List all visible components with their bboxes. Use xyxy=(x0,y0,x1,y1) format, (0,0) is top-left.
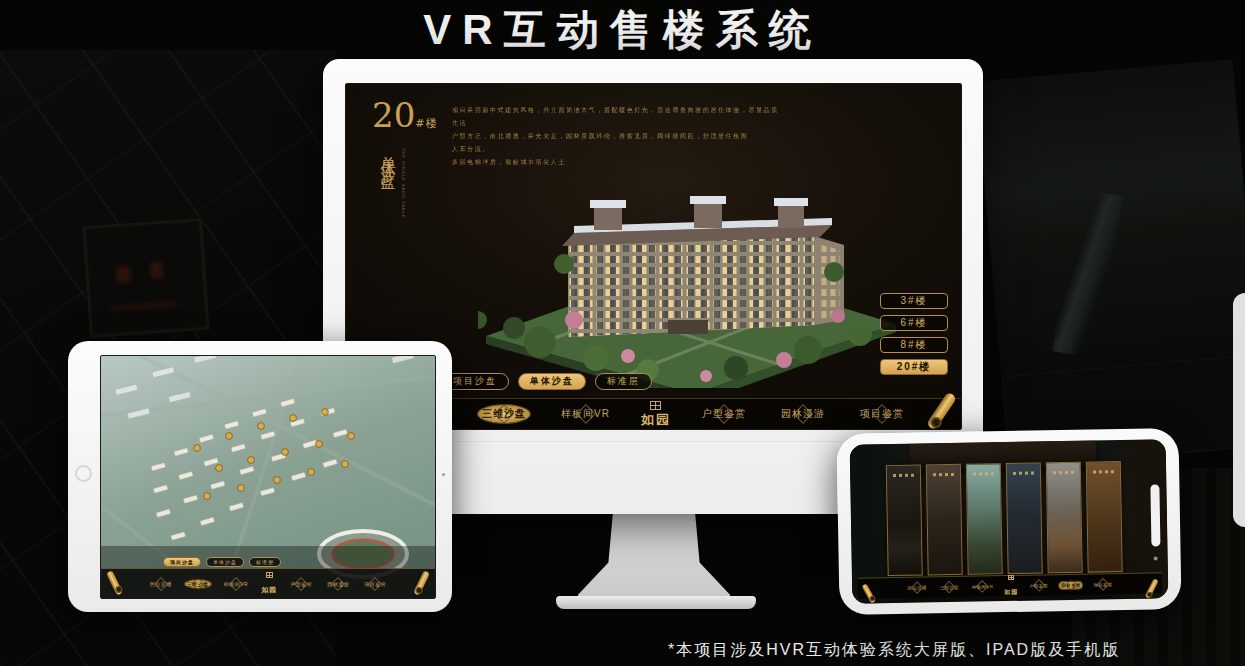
plaque-mark xyxy=(111,301,177,312)
tower-button-6[interactable]: 6#楼 xyxy=(880,315,948,331)
scroll-icon[interactable] xyxy=(926,391,957,430)
brand-logo: 如园 xyxy=(1004,575,1018,597)
building-number: 20 xyxy=(372,95,415,135)
tab-single-sandbox[interactable]: 单体沙盘 xyxy=(518,373,586,390)
tablet-view-tabs: 项目沙盘 单体沙盘 标准层 xyxy=(163,557,281,567)
river-shape xyxy=(1052,189,1124,358)
home-button[interactable] xyxy=(75,465,92,482)
brand-logo-text: 如园 xyxy=(261,585,277,594)
camera-icon xyxy=(442,473,445,476)
tablet-bottom-nav: 区位交通 三维沙盘 样板间VR 如园 户型鉴赏 园林漫游 项目鉴赏 xyxy=(101,568,435,598)
scroll-icon[interactable] xyxy=(106,570,123,595)
gallery-panels xyxy=(886,461,1123,576)
building-number-suffix: #楼 xyxy=(415,117,437,130)
background-device-sliver xyxy=(1233,293,1245,527)
background-plaque xyxy=(82,218,210,338)
nav-item-3d-sandbox[interactable]: 三维沙盘 xyxy=(938,583,961,590)
brand-logo-text: 如园 xyxy=(641,412,671,427)
nav-item-floorplan[interactable]: 户型鉴赏 xyxy=(698,405,750,423)
nav-item-3d-sandbox[interactable]: 三维沙盘 xyxy=(185,580,211,588)
building-3d-render[interactable] xyxy=(478,144,902,388)
nav-item-3d-sandbox[interactable]: 三维沙盘 xyxy=(478,405,530,423)
gallery-panel-garden[interactable] xyxy=(966,463,1003,575)
phone-screen: 区位交通 三维沙盘 样板间VR 如园 户型鉴赏 园林漫游 项目鉴赏 xyxy=(850,439,1169,603)
tower-button-8[interactable]: 8#楼 xyxy=(880,337,948,353)
gallery-panel-courtyard[interactable] xyxy=(886,465,923,577)
brand-logo: 如园 xyxy=(641,401,671,427)
nav-item-floorplan[interactable]: 户型鉴赏 xyxy=(288,580,314,588)
footnote-text: *本项目涉及HVR互动体验系统大屏版、IPAD版及手机版 xyxy=(668,640,1120,661)
tower-button-3[interactable]: 3#楼 xyxy=(880,293,948,309)
nav-item-garden-roam[interactable]: 园林漫游 xyxy=(777,405,829,423)
brand-logo-text: 如园 xyxy=(1004,588,1018,595)
nav-item-location-traffic[interactable]: 区位交通 xyxy=(148,580,174,588)
nav-item-project-view[interactable]: 项目鉴赏 xyxy=(1091,581,1114,588)
monitor-stand-neck xyxy=(578,512,730,604)
monitor-stand-base xyxy=(556,596,756,609)
description-line: 项目采用新中式建筑风格，外立面简洁大气，搭配暖色灯光，营造尊贵典雅的居住体验，尽… xyxy=(452,104,782,130)
plaque-mark xyxy=(150,262,163,279)
tablet-device: 项目沙盘 单体沙盘 标准层 区位交通 三维沙盘 样板间VR 如园 户型鉴赏 园林… xyxy=(68,341,452,612)
gallery-panel-warm-shelf[interactable] xyxy=(1086,461,1123,573)
plaque-mark xyxy=(116,266,131,283)
nav-item-showroom-vr[interactable]: 样板间VR xyxy=(222,580,250,588)
nav-item-location-traffic[interactable]: 区位交通 xyxy=(906,584,929,591)
seal-icon xyxy=(1008,575,1014,580)
nav-item-floorplan[interactable]: 户型鉴赏 xyxy=(1027,582,1050,589)
phone-speaker-pill xyxy=(1150,484,1160,546)
brand-logo: 如园 xyxy=(261,572,277,595)
tab-standard-floor[interactable]: 标准层 xyxy=(595,373,652,390)
poster-stage: VR互动售楼系统 20#楼 单体沙盘 THE SINGLE SAND TABLE… xyxy=(0,0,1245,666)
nav-item-project-view[interactable]: 项目鉴赏 xyxy=(856,405,908,423)
background-collage-river xyxy=(976,59,1245,378)
gallery-panel-interior[interactable] xyxy=(926,464,963,576)
tablet-screen: 项目沙盘 单体沙盘 标准层 区位交通 三维沙盘 样板间VR 如园 户型鉴赏 园林… xyxy=(100,355,436,599)
nav-item-showroom-vr[interactable]: 样板间VR xyxy=(557,405,614,423)
gallery-panel-autumn-wall[interactable] xyxy=(1046,462,1083,574)
section-title-vertical: 单体沙盘 xyxy=(378,144,397,264)
nav-item-project-view[interactable]: 项目鉴赏 xyxy=(362,580,388,588)
section-title-english: THE SINGLE SAND TABLE xyxy=(401,148,406,258)
scroll-icon[interactable] xyxy=(413,570,430,595)
camera-icon xyxy=(1154,556,1158,560)
nav-item-showroom-vr[interactable]: 样板间VR xyxy=(970,583,995,590)
phone-device: 区位交通 三维沙盘 样板间VR 如园 户型鉴赏 园林漫游 项目鉴赏 xyxy=(836,428,1181,615)
gallery-panel-tower-night[interactable] xyxy=(1006,462,1043,574)
page-title: VR互动售楼系统 xyxy=(0,2,1245,58)
tower-selector: 3#楼 6#楼 8#楼 20#楼 xyxy=(880,293,948,375)
nav-item-garden-roam[interactable]: 园林漫游 xyxy=(1059,581,1082,588)
tab-project-sandbox[interactable]: 项目沙盘 xyxy=(163,557,201,567)
nav-item-garden-roam[interactable]: 园林漫游 xyxy=(325,580,351,588)
tab-single-sandbox[interactable]: 单体沙盘 xyxy=(206,557,244,567)
tower-button-20[interactable]: 20#楼 xyxy=(880,359,948,375)
building-heading: 20#楼 xyxy=(372,98,437,132)
view-tabs: 项目沙盘 单体沙盘 标准层 xyxy=(441,373,652,390)
tab-standard-floor[interactable]: 标准层 xyxy=(249,557,281,567)
seal-icon xyxy=(266,572,273,578)
description-line: 户型方正，南北通透，采光充足，园林景观环绕，推窗见景，阔绰楼间距，舒适居住氛围 xyxy=(452,130,782,143)
seal-icon xyxy=(650,401,661,410)
